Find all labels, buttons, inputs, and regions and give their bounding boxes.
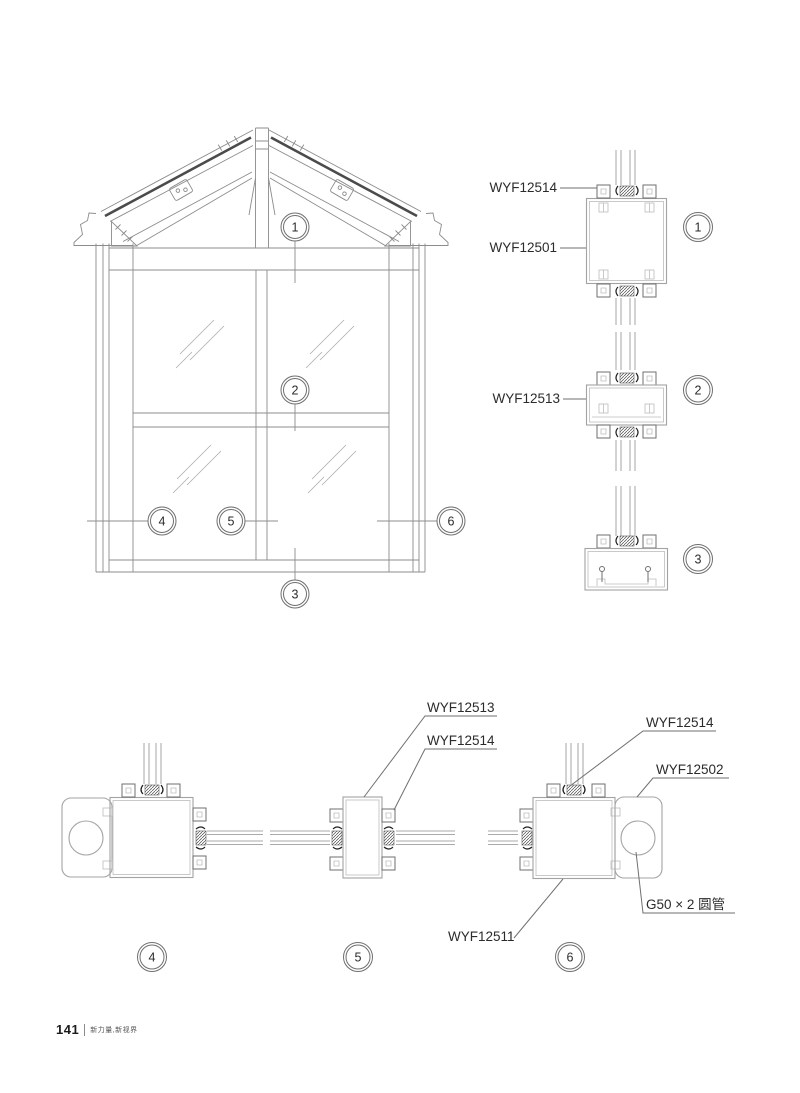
catalog-page: 1 2 3 4 5 6	[0, 0, 800, 1093]
callout-2: 2	[281, 376, 309, 404]
section-detail-2	[587, 372, 667, 438]
callout-detail-1: 1	[684, 213, 713, 242]
plan-detail-4	[62, 784, 206, 878]
label-wyf12501: WYF12501	[489, 240, 557, 255]
section-labels: WYF12514 WYF12501 WYF12513	[489, 180, 597, 406]
svg-text:3: 3	[292, 588, 299, 602]
footer-divider	[84, 1024, 85, 1036]
callout-6: 6	[437, 507, 465, 535]
plan-section-details: WYF12513 WYF12514 WYF12514 WYF12502 G50 …	[62, 700, 735, 972]
glass-panes	[173, 320, 356, 493]
page-number: 141	[56, 1022, 79, 1037]
label-wyf12514-section: WYF12514	[489, 180, 557, 195]
round-tube-right	[621, 821, 655, 855]
callout-4: 4	[148, 507, 176, 535]
elevation-callouts: 1 2 3 4 5 6	[87, 213, 465, 608]
svg-text:5: 5	[355, 951, 362, 965]
section-callouts: 1 2 3	[684, 213, 713, 574]
label-wyf12502: WYF12502	[656, 762, 724, 777]
vertical-section-details: WYF12514 WYF12501 WYF12513 1 2 3	[489, 150, 712, 590]
elevation-drawing: 1 2 3 4 5 6	[74, 128, 465, 608]
label-wyf12513-plan: WYF12513	[427, 700, 495, 715]
gable-roof	[74, 128, 448, 248]
plan-labels: WYF12513 WYF12514 WYF12514 WYF12502 G50 …	[364, 700, 735, 944]
label-wyf12511: WYF12511	[448, 929, 515, 944]
svg-text:2: 2	[292, 384, 299, 398]
svg-text:3: 3	[695, 553, 702, 567]
svg-text:2: 2	[695, 384, 702, 398]
footer-tagline: 新力量,新视界	[90, 1025, 137, 1035]
callout-detail-3: 3	[684, 545, 713, 574]
svg-text:4: 4	[149, 951, 156, 965]
svg-text:5: 5	[228, 515, 235, 529]
svg-text:1: 1	[695, 221, 702, 235]
section-detail-1	[587, 185, 667, 297]
gutter-end-right	[426, 213, 448, 246]
callout-detail-6: 6	[556, 943, 585, 972]
svg-text:6: 6	[448, 515, 455, 529]
glass-run	[616, 150, 635, 185]
label-wyf12513-section: WYF12513	[492, 391, 560, 406]
plan-detail-6	[520, 784, 662, 879]
svg-text:1: 1	[292, 221, 299, 235]
svg-text:4: 4	[159, 515, 166, 529]
callout-detail-5: 5	[344, 943, 373, 972]
callout-detail-4: 4	[138, 943, 167, 972]
round-tube-left	[69, 821, 103, 855]
label-g50-tube: G50 × 2 圆管	[646, 897, 725, 912]
technical-drawing-canvas: 1 2 3 4 5 6	[0, 0, 800, 1093]
callout-detail-2: 2	[684, 376, 713, 405]
gutter-end-left	[74, 213, 96, 246]
plan-detail-5	[330, 797, 395, 878]
callout-1: 1	[281, 213, 309, 241]
page-footer: 141 新力量,新视界	[56, 1022, 138, 1037]
callout-5: 5	[217, 507, 245, 535]
callout-3: 3	[281, 580, 309, 608]
label-wyf12514-plan-mid: WYF12514	[427, 733, 495, 748]
plan-callouts: 4 5 6	[138, 943, 585, 972]
section-detail-3	[585, 535, 668, 590]
label-wyf12514-plan-right: WYF12514	[646, 715, 714, 730]
frame-grid	[96, 244, 425, 573]
svg-text:6: 6	[567, 951, 574, 965]
